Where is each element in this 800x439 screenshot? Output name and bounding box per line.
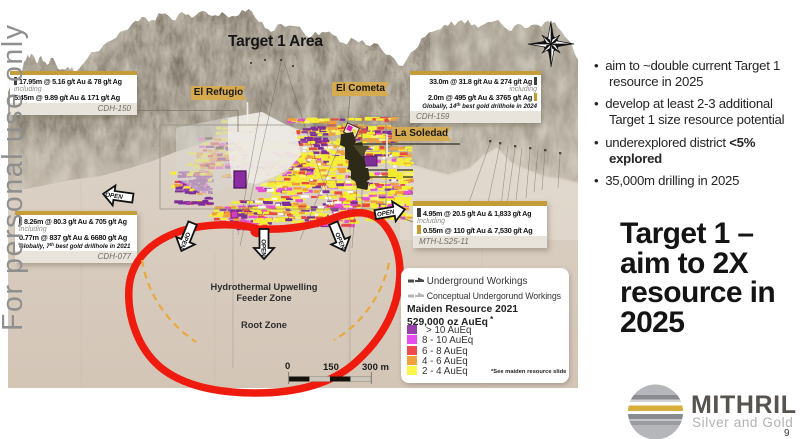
svg-text:OPEN: OPEN — [260, 239, 267, 257]
svg-text:Silver and Gold: Silver and Gold — [692, 415, 793, 430]
